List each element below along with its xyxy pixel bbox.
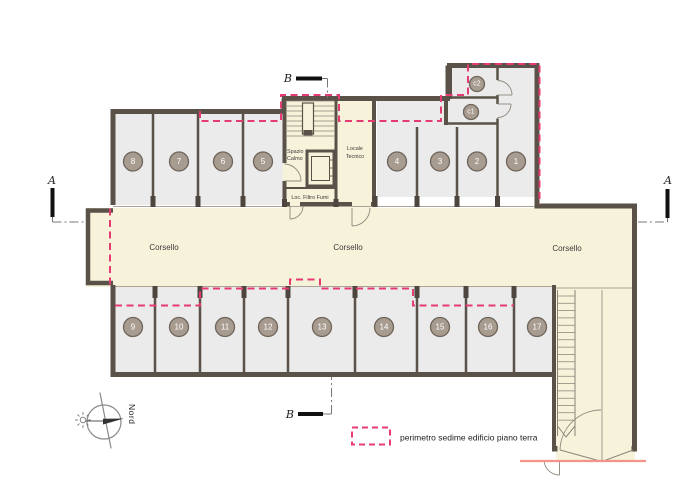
stall-badge-5: 5 (254, 152, 273, 171)
section-marker-a-left: A (47, 174, 84, 222)
svg-text:15: 15 (436, 323, 445, 332)
svg-text:3: 3 (438, 157, 443, 166)
cellar-badge-c2: c2 (470, 77, 485, 92)
stall-badge-14: 14 (375, 318, 394, 337)
north-compass: Nord (76, 393, 138, 448)
stall-badge-2: 2 (468, 152, 487, 171)
legend: perimetro sedime edificio piano terra (352, 428, 538, 445)
stall-badge-16: 16 (479, 318, 498, 337)
stall-badge-6: 6 (214, 152, 233, 171)
spazio-calmo-label-2: Calmo (287, 156, 303, 162)
section-marker-b-bottom: B (285, 377, 332, 421)
svg-text:c2: c2 (473, 81, 481, 88)
svg-text:c1: c1 (467, 109, 475, 116)
svg-text:2: 2 (475, 157, 480, 166)
svg-text:8: 8 (131, 157, 136, 166)
stair-step-block (304, 130, 313, 136)
svg-text:7: 7 (177, 157, 182, 166)
stall-badge-1: 1 (507, 152, 526, 171)
pedestrian-door-arc (544, 461, 560, 476)
svg-text:14: 14 (380, 323, 389, 332)
svg-text:4: 4 (395, 157, 400, 166)
corsello-label-left: Corsello (149, 243, 179, 252)
svg-text:1: 1 (514, 157, 519, 166)
stall-badge-13: 13 (313, 318, 332, 337)
stall-badge-8: 8 (124, 152, 143, 171)
section-label-b-top: B (283, 72, 292, 85)
stall-badge-3: 3 (431, 152, 450, 171)
north-label: Nord (127, 404, 137, 424)
section-label-a-left: A (47, 174, 56, 187)
svg-text:10: 10 (175, 323, 184, 332)
stall-badge-9: 9 (124, 318, 143, 337)
stall-badge-7: 7 (170, 152, 189, 171)
corsello-label-center: Corsello (333, 243, 363, 252)
svg-text:12: 12 (264, 323, 273, 332)
legend-dash-swatch (352, 428, 390, 445)
svg-text:11: 11 (221, 323, 230, 332)
stall-badge-12: 12 (259, 318, 278, 337)
corsello-label-right: Corsello (552, 244, 582, 253)
spazio-calmo-label-1: Spazio (287, 149, 303, 155)
svg-text:9: 9 (131, 323, 136, 332)
stall1-floor (497, 66, 536, 197)
svg-text:13: 13 (318, 323, 327, 332)
floor-plan-drawing: A A B B Corsello Corsello Corsello Sp (0, 0, 690, 500)
section-label-b-bottom: B (285, 408, 294, 421)
section-label-a-right: A (663, 174, 672, 187)
stall-badge-17: 17 (528, 318, 547, 337)
locale-tecnico-label-1: Locale (347, 146, 363, 152)
sun-icon (76, 413, 91, 428)
locale-tecnico-label-2: Tecnico (346, 154, 364, 160)
floor-plan-page: A A B B Corsello Corsello Corsello Sp (0, 0, 690, 500)
stall-badge-4: 4 (388, 152, 407, 171)
section-marker-a-right: A (638, 174, 672, 222)
loc-filtro-fumi-label: Loc. Filtro Fumi (291, 195, 328, 201)
stall-badge-15: 15 (431, 318, 450, 337)
cellar-badge-c1: c1 (464, 105, 479, 120)
stall-badge-10: 10 (170, 318, 189, 337)
svg-text:16: 16 (484, 323, 493, 332)
stall-badge-11: 11 (216, 318, 235, 337)
stair-landing (303, 103, 314, 134)
svg-text:17: 17 (533, 323, 542, 332)
svg-text:5: 5 (261, 157, 266, 166)
legend-label: perimetro sedime edificio piano terra (400, 433, 538, 443)
svg-text:6: 6 (221, 157, 226, 166)
